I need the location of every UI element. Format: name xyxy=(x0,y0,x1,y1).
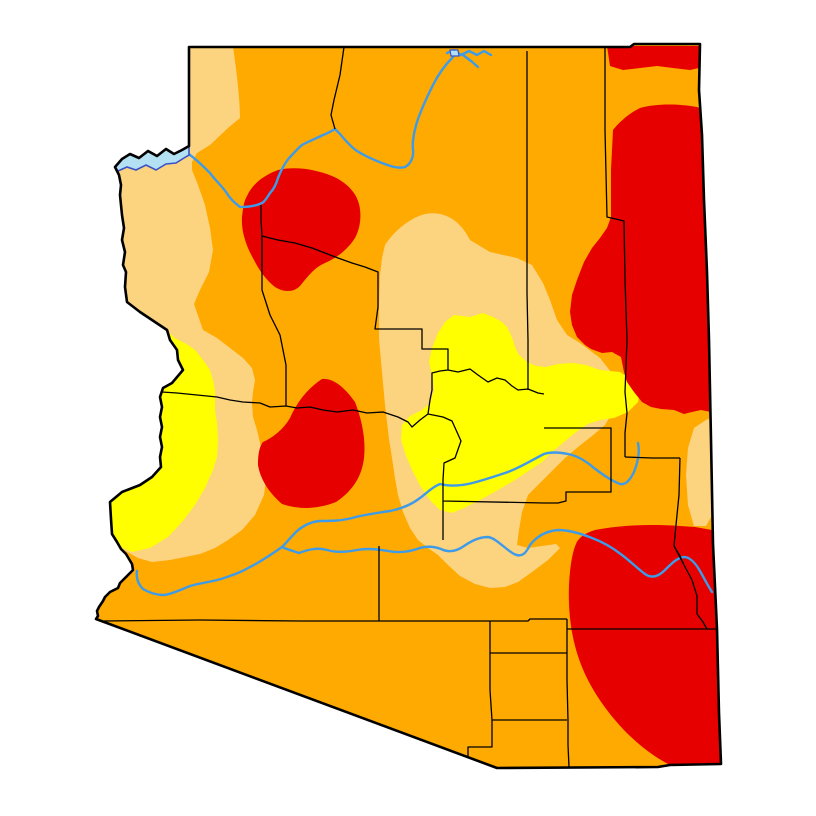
extreme-drought-northeast-strip xyxy=(607,46,699,70)
lake-powell-patch xyxy=(450,50,459,56)
arizona-drought-map xyxy=(0,0,816,816)
drought-regions-layer xyxy=(78,40,721,768)
arizona-drought-map-stage xyxy=(0,0,816,816)
